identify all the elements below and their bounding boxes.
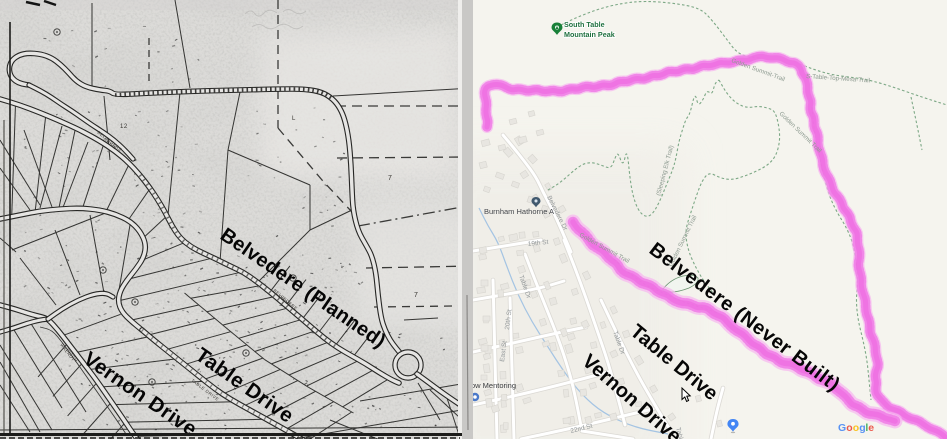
svg-text:o: o	[853, 422, 859, 434]
svg-text:7: 7	[388, 175, 393, 182]
svg-text:ow Mentoring: ow Mentoring	[473, 381, 516, 390]
svg-text:L: L	[292, 116, 296, 122]
svg-text:12: 12	[120, 124, 128, 130]
svg-text:South Table: South Table	[564, 20, 605, 29]
svg-text:Burnham Hathorne A: Burnham Hathorne A	[484, 207, 554, 216]
svg-text:e: e	[868, 422, 874, 434]
svg-text:G: G	[838, 422, 846, 434]
svg-text:o: o	[846, 422, 852, 434]
svg-text:Mountain Peak: Mountain Peak	[564, 30, 615, 39]
svg-text:7: 7	[414, 292, 419, 299]
